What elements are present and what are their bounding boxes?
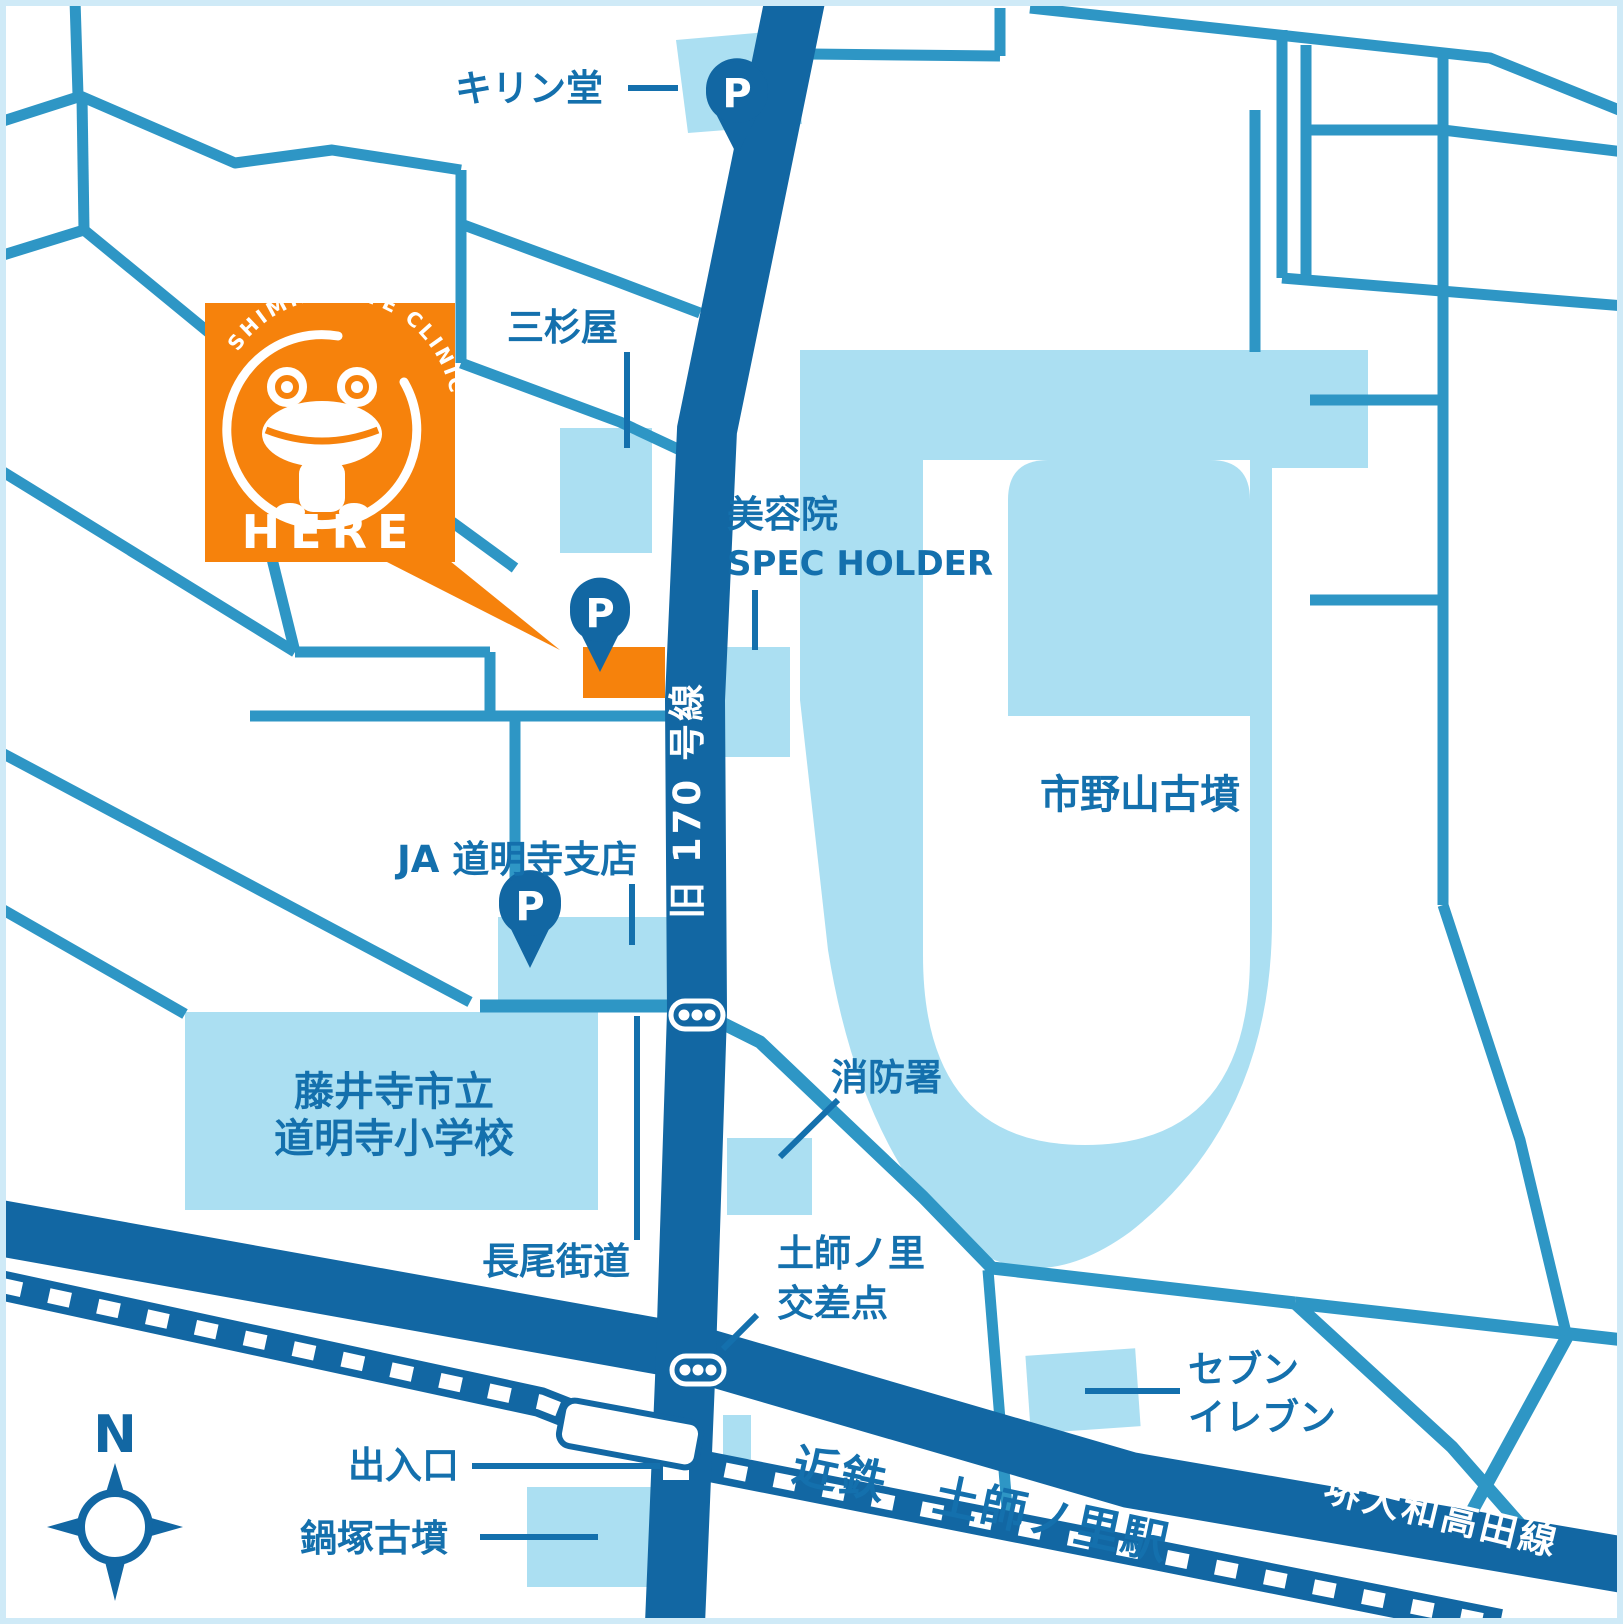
label-spec-holder: SPEC HOLDER	[727, 544, 993, 584]
label-seven-line1: セブン	[1188, 1348, 1299, 1391]
label-kyu170: 旧 170 号線	[666, 681, 709, 919]
building-misugiya	[560, 428, 652, 553]
access-map: 旧 170 号線 堺大和高田線 近鉄 土師ノ里駅 SHIMIZU EYE CLI…	[0, 0, 1623, 1624]
label-hajinosato-line1: 土師ノ里	[777, 1232, 925, 1275]
label-hajinosato-line2: 交差点	[777, 1282, 888, 1325]
parking-letter: P	[585, 591, 614, 637]
label-nabezuka-kofun: 鍋塚古墳	[300, 1517, 448, 1560]
label-ja-domyoji: JA 道明寺支店	[394, 838, 637, 881]
building-spec-holder	[725, 647, 790, 757]
building-near-station	[723, 1415, 751, 1459]
label-biyoin: 美容院	[727, 493, 838, 536]
label-kirindo: キリン堂	[455, 67, 603, 110]
label-fire-station: 消防署	[831, 1056, 942, 1099]
compass: N	[47, 1405, 183, 1601]
label-nagao-kaido: 長尾街道	[482, 1240, 630, 1283]
here-text: HERE	[242, 505, 419, 559]
map-canvas: 旧 170 号線 堺大和高田線 近鉄 土師ノ里駅 SHIMIZU EYE CLI…	[0, 0, 1623, 1624]
compass-n: N	[93, 1405, 137, 1465]
label-school-line2: 道明寺小学校	[274, 1116, 514, 1162]
building-fire-station	[727, 1138, 812, 1215]
label-school-line1: 藤井寺市立	[294, 1069, 494, 1115]
label-seven-line2: イレブン	[1188, 1396, 1336, 1439]
label-misugiya: 三杉屋	[507, 306, 618, 349]
compass-center	[81, 1493, 149, 1561]
kofun-mound	[1008, 460, 1250, 716]
parking-letter: P	[515, 884, 544, 930]
parking-letter: P	[722, 71, 751, 117]
label-deiriguchi: 出入口	[348, 1444, 459, 1487]
here-marker-tail	[385, 561, 560, 650]
label-ichinoyama-kofun: 市野山古墳	[1040, 772, 1240, 818]
